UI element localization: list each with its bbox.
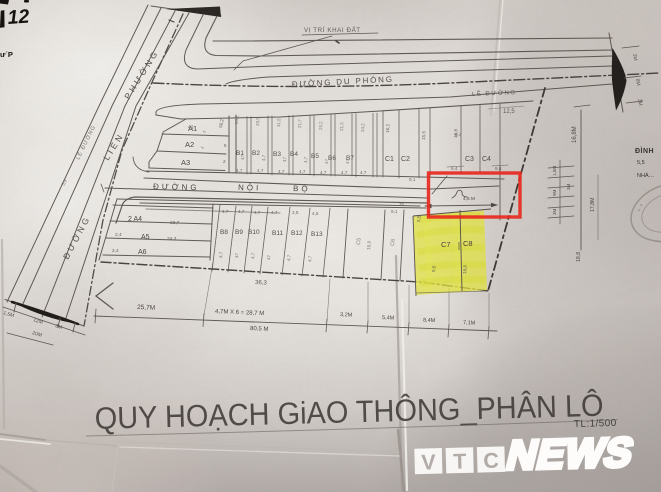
svg-text:B5: B5 [311,153,319,160]
svg-text:21,7: 21,7 [297,119,302,128]
svg-text:12,5: 12,5 [503,109,515,115]
svg-text:4,5: 4,5 [312,211,319,216]
svg-text:4,7: 4,7 [299,169,306,174]
svg-text:36,3: 36,3 [255,280,268,287]
svg-text:C3: C3 [465,156,474,163]
svg-text:NHÀ…: NHÀ… [637,172,654,179]
svg-text:5,5: 5,5 [431,265,437,272]
svg-text:B8: B8 [220,229,228,236]
svg-text:25,7M: 25,7M [137,304,155,312]
svg-text:4,7: 4,7 [303,156,308,163]
svg-text:B4: B4 [290,151,298,158]
svg-text:3M: 3M [636,98,643,106]
svg-text:B6: B6 [328,155,336,162]
svg-text:18,8: 18,8 [366,240,372,250]
svg-text:2,4: 2,4 [115,232,122,238]
svg-text:15,5: 15,5 [421,130,426,140]
svg-text:5,5: 5,5 [637,160,645,166]
svg-text:9M: 9M [552,189,557,196]
svg-text:A6: A6 [138,249,147,256]
svg-text:4,7: 4,7 [236,168,243,173]
svg-text:4,5 M: 4,5 M [463,196,475,202]
svg-text:ĐÌNH: ĐÌNH [635,146,654,155]
svg-text:8M: 8M [634,78,641,86]
svg-text:2,4: 2,4 [112,248,119,254]
svg-text:21,3: 21,3 [339,122,344,131]
svg-text:31,5: 31,5 [276,118,281,127]
svg-text:4,7: 4,7 [261,154,266,161]
svg-text:12: 12 [7,6,30,29]
svg-text:4,7: 4,7 [250,252,256,259]
svg-text:4,7: 4,7 [286,254,292,261]
svg-text:C8: C8 [463,239,473,248]
svg-text:18,8: 18,8 [576,252,582,262]
svg-text:5,5: 5,5 [416,215,422,222]
svg-text:47: 47 [282,156,287,162]
svg-text:A2: A2 [185,140,194,149]
svg-text:24,2: 24,2 [360,123,365,132]
svg-text:ĐƯỜNG: ĐƯỜNG [153,182,200,192]
svg-text:9,1: 9,1 [391,209,398,214]
svg-text:24,3: 24,3 [167,236,177,242]
svg-text:4,7: 4,7 [222,209,229,214]
svg-text:23,7: 23,7 [170,220,180,226]
svg-text:25,2: 25,2 [318,121,323,130]
svg-text:4,7: 4,7 [278,169,285,174]
svg-text:B12: B12 [291,230,303,237]
svg-text:18,8: 18,8 [462,264,468,274]
svg-text:4,7: 4,7 [320,170,327,175]
svg-text:8,4M: 8,4M [423,318,436,325]
svg-text:47: 47 [240,154,245,160]
svg-text:47: 47 [345,158,350,164]
svg-text:17,8M: 17,8M [590,198,596,212]
svg-text:9,1: 9,1 [409,177,416,182]
svg-text:4,7: 4,7 [341,170,348,175]
svg-text:7,1M: 7,1M [463,320,476,327]
svg-text:9,4: 9,4 [495,166,502,171]
svg-text:20,5: 20,5 [255,117,260,126]
svg-text:4,7: 4,7 [254,210,261,215]
svg-text:C: C [483,449,499,473]
svg-text:2 A4: 2 A4 [128,216,142,223]
svg-text:4,7: 4,7 [307,255,313,262]
svg-text:B2: B2 [252,150,260,157]
svg-text:····: ···· [648,228,654,233]
svg-text:20,2: 20,2 [234,115,239,124]
svg-text:B3: B3 [273,151,281,158]
svg-text:C2: C2 [401,156,410,163]
svg-text:NEWS: NEWS [502,429,638,479]
svg-text:80,5 M: 80,5 M [250,326,269,333]
svg-text:16,8M: 16,8M [572,126,578,143]
svg-text:BỘ: BỘ [293,184,311,193]
svg-text:B13: B13 [311,231,323,238]
svg-text:TL:1/500: TL:1/500 [574,418,617,430]
svg-text:4,7: 4,7 [360,170,367,175]
svg-text:3,2M: 3,2M [340,312,353,319]
svg-text:4,7: 4,7 [238,209,245,214]
svg-text:C5: C5 [356,238,363,246]
svg-text:A5: A5 [141,234,150,241]
svg-text:B11: B11 [272,230,283,237]
svg-text:9,4: 9,4 [455,132,462,137]
svg-text:3M: 3M [566,183,571,190]
svg-text:41: 41 [188,125,194,131]
svg-text:A3: A3 [181,158,190,167]
svg-text:C4: C4 [482,156,491,163]
svg-text:ưˊP: ưˊP [0,50,13,59]
svg-text:5,4M: 5,4M [382,315,395,322]
svg-text:V: V [421,450,437,474]
svg-text:16,2: 16,2 [385,123,390,133]
svg-text:B10: B10 [248,229,260,236]
svg-text:T: T [453,449,467,473]
svg-text:2,5: 2,5 [292,210,299,215]
svg-text:B9: B9 [235,229,243,236]
svg-text:4,7: 4,7 [218,251,224,258]
svg-text:VỊ TRÍ KHAI ĐẤT: VỊ TRÍ KHAI ĐẤT [304,27,361,34]
svg-text:4,7: 4,7 [271,210,278,215]
svg-text:C6: C6 [390,239,397,247]
svg-text:4,7: 4,7 [257,168,264,173]
svg-text:3M: 3M [552,208,557,215]
svg-text:1,5M: 1,5M [552,166,557,176]
svg-text:C1: C1 [385,156,394,163]
svg-text:NỘI: NỘI [238,183,261,193]
svg-text:47: 47 [324,158,329,164]
svg-text:3M: 3M [631,53,638,61]
svg-text:C7: C7 [441,240,451,249]
